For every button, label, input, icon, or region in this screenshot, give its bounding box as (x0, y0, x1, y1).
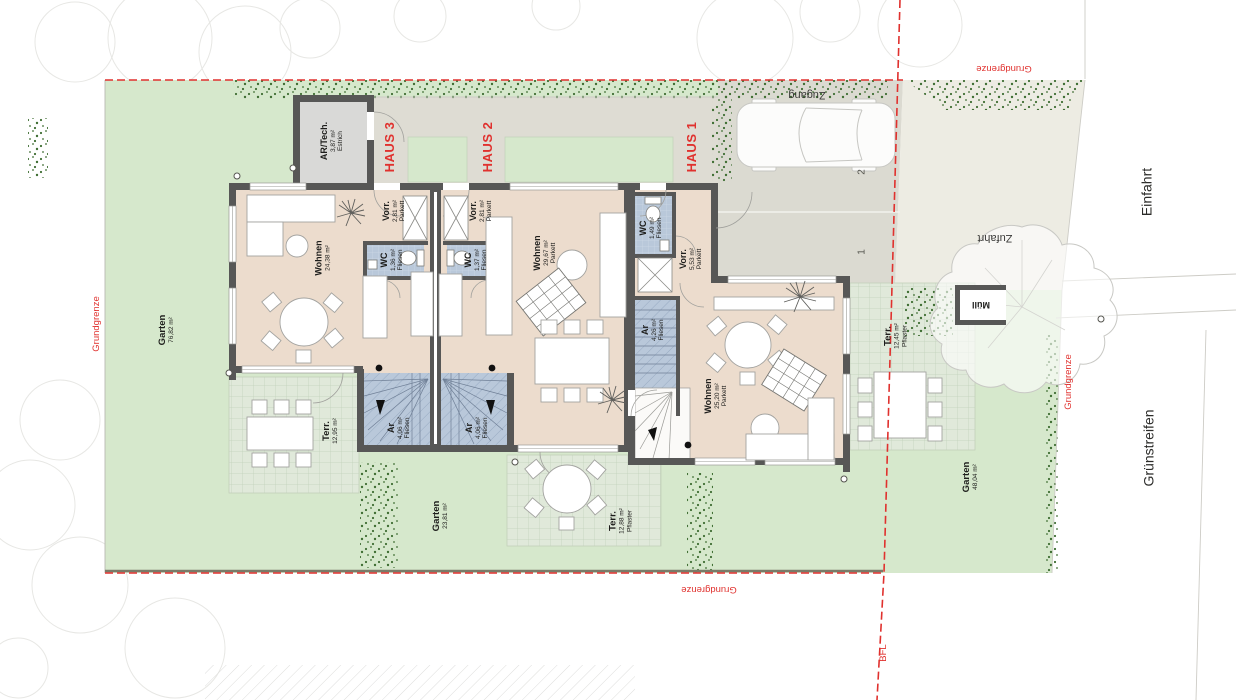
room-floor: Parkett (399, 200, 406, 222)
grundgrenze-top-label: Grundgrenze (976, 63, 1031, 73)
room-floor: Fliesen (656, 217, 663, 239)
front-garden-patches (408, 137, 673, 182)
area-name: Garten (432, 501, 442, 532)
area-floor: Pflaster (626, 508, 633, 534)
room-area: 24,38 m² (324, 240, 331, 275)
car (737, 99, 895, 171)
zufahrt-label: Zufahrt (978, 232, 1013, 244)
room-area: 3,87 m² (330, 122, 337, 160)
room-floor: Fliesen (482, 417, 489, 439)
area-size: 48,04 m² (973, 462, 980, 493)
room-label-h2-wohnen: Wohnen 29,67 m² Parkett (533, 235, 557, 270)
room-floor: Parkett (486, 200, 493, 222)
toilet-icon (417, 250, 424, 266)
room-floor: Fliesen (404, 417, 411, 439)
haus3-label: HAUS 3 (383, 122, 397, 173)
room-name: Vorr. (679, 248, 689, 270)
room-name: Ar (387, 417, 397, 439)
room-area: 4,26 m² (651, 319, 658, 341)
room-area: 4,06 m² (475, 417, 482, 439)
room-name: WC (639, 217, 649, 239)
haus2-label: HAUS 2 (481, 122, 495, 173)
room-name: Vorr. (382, 200, 392, 222)
room-label-h2-wc: WC 1,37 m² Fliesen (464, 249, 488, 271)
kitchen-counter (486, 217, 512, 335)
room-label-h1-vorr: Vorr. 5,53 m² Parkett (679, 248, 703, 270)
party-wall-gap (434, 192, 437, 444)
room-area: 2,81 m² (479, 200, 486, 222)
muell-label: Müll (972, 299, 990, 309)
kitchen-counter (411, 272, 433, 336)
room-label-h2-ar: Ar 4,06 m² Fliesen (465, 417, 489, 439)
room-label-h3-vorr: Vorr. 2,81 m² Parkett (382, 200, 406, 222)
neighbor-building-hatch (205, 665, 635, 700)
room-label-h1-wc: WC 1,49 m² Fliesen (639, 217, 663, 239)
area-name: Terr. (609, 508, 619, 534)
grundgrenze-left-label: Grundgrenze (92, 296, 102, 351)
gruenstreifen-label: Grünstreifen (1141, 409, 1156, 486)
room-area: 5,53 m² (689, 248, 696, 270)
room-floor: Fliesen (397, 249, 404, 271)
einfahrt-label: Einfahrt (1139, 168, 1154, 216)
area-floor: Pflaster (901, 323, 908, 349)
garten-east-label: Garten 48,04 m² (962, 462, 980, 493)
room-floor: Estrich (337, 122, 344, 160)
parking-space-2-label: 2 (857, 169, 868, 175)
room-name: Ar (465, 417, 475, 439)
area-size: 12,45 m² (894, 323, 901, 349)
terrace-dining-haus3 (247, 400, 313, 467)
room-floor: Parkett (721, 378, 728, 413)
area-name: Terr. (884, 323, 894, 349)
side-table-haus3 (286, 235, 308, 257)
grundgrenze-bottom-label: Grundgrenze (681, 584, 736, 594)
garten-west-label: Garten 76,82 m² (158, 315, 176, 346)
room-name: Wohnen (704, 378, 714, 413)
kitchen-counter (363, 276, 387, 338)
terrace-dining-haus1 (858, 372, 942, 441)
room-label-artech: AR/Tech. 3,87 m² Estrich (320, 122, 344, 160)
room-label-h3-ar: Ar 4,06 m² Fliesen (387, 417, 411, 439)
haus1-label: HAUS 1 (685, 122, 699, 173)
area-name: Garten (962, 462, 972, 493)
area-size: 23,81 m² (443, 501, 450, 532)
kitchen-counter (439, 274, 462, 336)
room-area: 4,06 m² (397, 417, 404, 439)
toilet-icon (645, 197, 661, 204)
room-area: 25,20 m² (714, 378, 721, 413)
room-label-h3-wohnen: Wohnen 24,38 m² (314, 240, 331, 275)
terr-haus2-label: Terr. 12,88 m² Pflaster (609, 508, 634, 534)
bfl-label: BFL (879, 644, 889, 661)
grundgrenze-right-label: Grundgrenze (1064, 354, 1074, 409)
room-name: AR/Tech. (320, 122, 330, 160)
terr-haus1-label: Terr. 12,45 m² Pflaster (884, 323, 909, 349)
kitchen-counter (714, 297, 834, 310)
area-size: 12,88 m² (619, 508, 626, 534)
room-label-h2-vorr: Vorr. 2,81 m² Parkett (469, 200, 493, 222)
garten-mid-label: Garten 23,81 m² (432, 501, 450, 532)
area-name: Garten (158, 315, 168, 346)
toilet-icon (447, 250, 454, 266)
washbasin-icon (368, 260, 377, 269)
room-name: Wohnen (533, 235, 543, 270)
area-size: 76,82 m² (169, 315, 176, 346)
room-label-h1-wohnen: Wohnen 25,20 m² Parkett (704, 378, 728, 413)
room-floor: Parkett (696, 248, 703, 270)
room-label-h1-ar: Ar 4,26 m² Fliesen (641, 319, 665, 341)
sofa-haus2 (600, 213, 626, 317)
shrub-patch-west (28, 118, 48, 178)
room-area: 2,81 m² (392, 200, 399, 222)
room-floor: Fliesen (658, 319, 665, 341)
parking-space-1-label: 1 (857, 249, 868, 255)
room-name: WC (464, 249, 474, 271)
room-floor: Fliesen (481, 249, 488, 271)
site-plan: HAUS 1 HAUS 2 HAUS 3 AR/Tech. 3,87 m² Es… (0, 0, 1236, 700)
winder-stair-haus1 (635, 388, 690, 460)
site-plan-drawing (0, 0, 1236, 700)
terr-haus3-label: Terr. 12,95 m² (322, 418, 340, 444)
room-area: 1,37 m² (474, 249, 481, 271)
room-label-h3-wc: WC 1,36 m² Fliesen (380, 249, 404, 271)
room-name: WC (380, 249, 390, 271)
dining-set-haus2 (535, 320, 609, 402)
room-name: Ar (641, 319, 651, 341)
room-area: 29,67 m² (543, 235, 550, 270)
area-name: Terr. (322, 418, 332, 444)
area-size: 12,95 m² (333, 418, 340, 444)
room-name: Vorr. (469, 200, 479, 222)
room-area: 1,49 m² (649, 217, 656, 239)
room-area: 1,36 m² (390, 249, 397, 271)
zugang-label: Zugang (788, 89, 825, 101)
washbasin-icon (660, 240, 669, 251)
room-floor: Parkett (550, 235, 557, 270)
room-name: Wohnen (314, 240, 324, 275)
